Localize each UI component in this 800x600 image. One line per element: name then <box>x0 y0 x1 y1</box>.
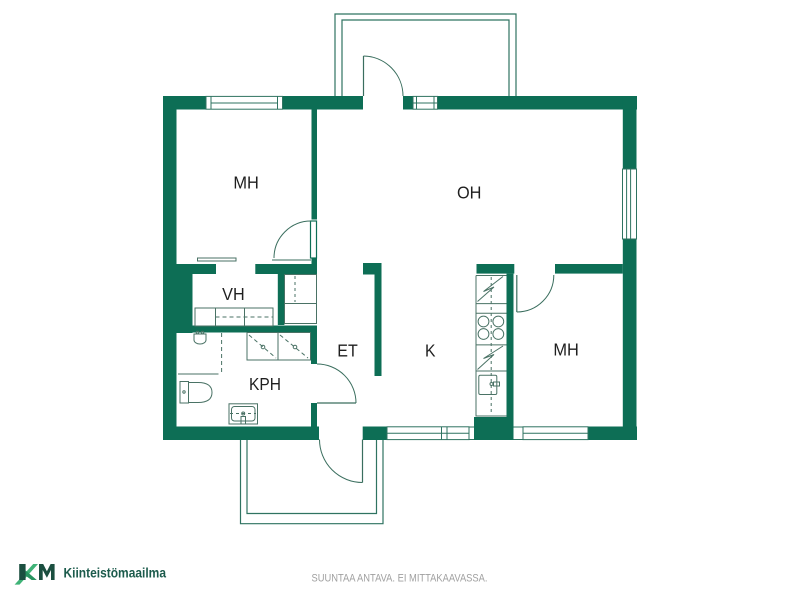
svg-text:OH: OH <box>457 183 482 203</box>
svg-text:MH: MH <box>233 172 259 192</box>
svg-text:MH: MH <box>553 340 579 360</box>
svg-text:SUUNTAA ANTAVA. EI MITTAKAAVAS: SUUNTAA ANTAVA. EI MITTAKAAVASSA. <box>312 572 488 584</box>
svg-text:K: K <box>425 341 436 361</box>
svg-text:KPH: KPH <box>249 374 281 394</box>
svg-text:ET: ET <box>337 340 358 360</box>
svg-text:Kiinteistömaailma: Kiinteistömaailma <box>64 565 167 581</box>
svg-text:VH: VH <box>222 284 245 304</box>
